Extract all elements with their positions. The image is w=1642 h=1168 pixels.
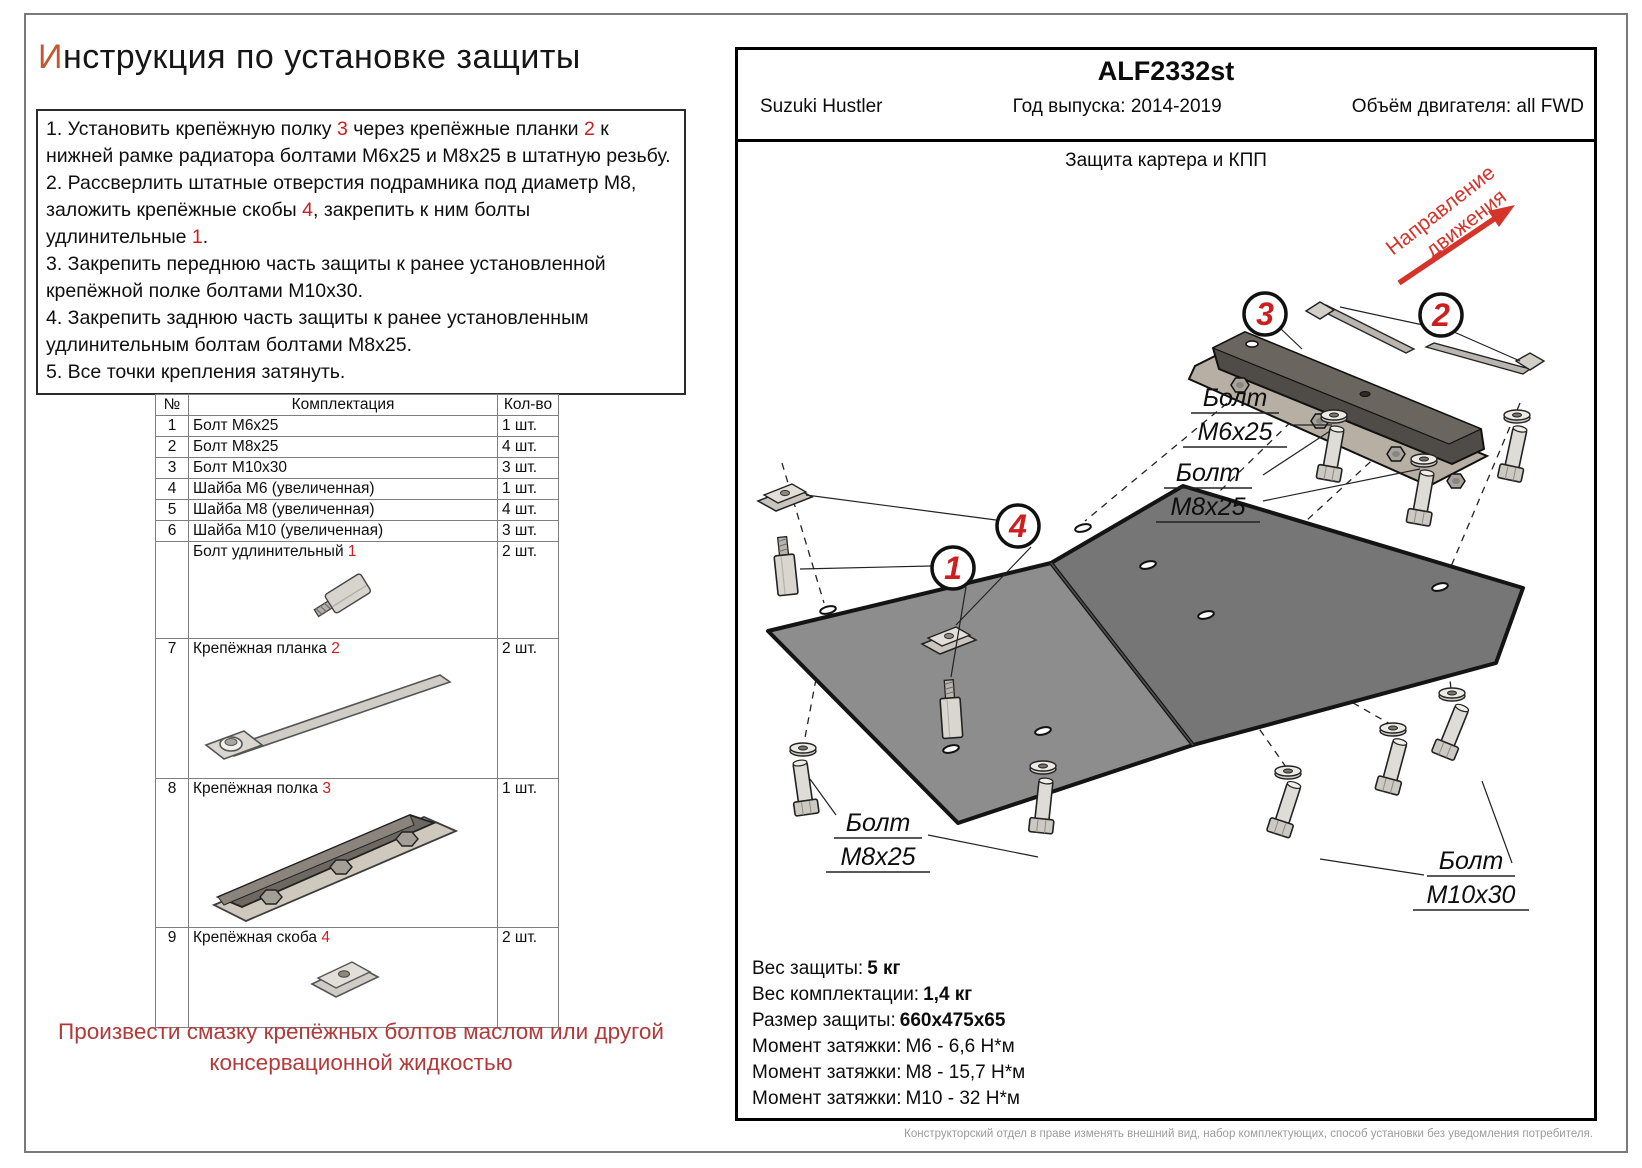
page-title: Инструкция по установке защиты <box>38 38 581 77</box>
part-name: Крепёжная скоба 4 <box>189 928 498 1028</box>
part-number: 8 <box>156 779 189 928</box>
part-qty: 1 шт. <box>498 779 559 928</box>
part-qty: 3 шт. <box>498 458 559 479</box>
part-number: 1 <box>156 416 189 437</box>
extension-bolt <box>772 536 798 596</box>
svg-text:Болт: Болт <box>1439 847 1504 875</box>
part-name: Шайба М8 (увеличенная) <box>189 500 498 521</box>
mounting-clamp <box>758 484 812 511</box>
specs-list: Вес защиты:5 кгВес комплектации:1,4 кгРа… <box>752 956 1025 1112</box>
instruction-list: 1. Установить крепёжную полку 3 через кр… <box>36 109 686 395</box>
part-qty: 2 шт. <box>498 639 559 779</box>
label-bolt-m8x25-lower: Болт М8х25 <box>826 809 930 872</box>
title-lead-letter: И <box>38 38 63 76</box>
mounting-clamp-drawing <box>298 950 388 1012</box>
parts-table-row: 2Болт М8х254 шт. <box>156 437 559 458</box>
spec-line: Момент затяжки:М6 - 6,6 Н*м <box>752 1034 1025 1060</box>
parts-table-row: 8Крепёжная полка 3 1 шт. <box>156 779 559 928</box>
callout-1: 1 <box>932 547 974 589</box>
parts-table-row: 3Болт М10х303 шт. <box>156 458 559 479</box>
part-qty: 4 шт. <box>498 437 559 458</box>
protection-plate <box>768 486 1523 823</box>
exploded-view-drawing: Направление движения <box>740 163 1598 938</box>
part-qty: 2 шт. <box>498 928 559 1028</box>
svg-text:М10х30: М10х30 <box>1427 881 1516 909</box>
instruction-item: 3. Закрепить переднюю часть защиты к ран… <box>46 251 676 305</box>
shelf-nut <box>1387 447 1405 461</box>
label-bolt-m10x30: Болт М10х30 <box>1413 847 1529 910</box>
parts-table-row: 5Шайба М8 (увеличенная)4 шт. <box>156 500 559 521</box>
part-number: 7 <box>156 639 189 779</box>
instruction-item: 2. Рассверлить штатные отверстия подрамн… <box>46 170 676 251</box>
spec-line: Момент затяжки:М8 - 15,7 Н*м <box>752 1060 1025 1086</box>
shelf-nut <box>1447 474 1465 488</box>
part-number: 5 <box>156 500 189 521</box>
parts-table-row: Болт удлинительный 1 2 шт. <box>156 542 559 639</box>
product-code: ALF2332st <box>738 56 1594 87</box>
part-number <box>156 542 189 639</box>
part-name: Шайба М6 (увеличенная) <box>189 479 498 500</box>
header-num: № <box>156 395 189 416</box>
instruction-sheet: Инструкция по установке защиты 1. Устано… <box>0 0 1642 1168</box>
title-rest: нструкция по установке защиты <box>63 38 581 76</box>
drawing-panel: ALF2332st Suzuki Hustler Год выпуска: 20… <box>735 47 1597 1121</box>
parts-table-row: 9Крепёжная скоба 4 2 шт. <box>156 928 559 1028</box>
standoff-bolt-drawing <box>301 564 385 632</box>
instruction-item: 4. Закрепить заднюю часть защиты к ранее… <box>46 305 676 359</box>
part-image-clamp <box>193 950 493 1012</box>
vehicle-years: Год выпуска: 2014-2019 <box>1013 96 1222 118</box>
parts-table-row: 4Шайба М6 (увеличенная)1 шт. <box>156 479 559 500</box>
part-name: Болт М6х25 <box>189 416 498 437</box>
svg-text:М6х25: М6х25 <box>1197 418 1272 446</box>
lubrication-note: Произвести смазку крепёжных болтов масло… <box>36 1016 686 1078</box>
svg-text:4: 4 <box>1008 508 1027 544</box>
part-image-standoff <box>193 564 493 632</box>
part-number: 2 <box>156 437 189 458</box>
header-qty: Кол-во <box>498 395 559 416</box>
vehicle-info-row: Suzuki Hustler Год выпуска: 2014-2019 Об… <box>738 96 1594 118</box>
spec-line: Размер защиты:660х475х65 <box>752 1008 1025 1034</box>
mounting-strip-drawing <box>198 661 488 773</box>
part-qty: 3 шт. <box>498 521 559 542</box>
part-name: Болт удлинительный 1 <box>189 542 498 639</box>
instruction-item: 5. Все точки крепления затянуть. <box>46 359 676 386</box>
callout-4: 4 <box>997 505 1039 547</box>
instruction-item: 1. Установить крепёжную полку 3 через кр… <box>46 116 676 170</box>
parts-table-row: 1Болт М6х251 шт. <box>156 416 559 437</box>
part-name: Болт М8х25 <box>189 437 498 458</box>
callout-3: 3 <box>1244 293 1286 335</box>
spec-line: Вес защиты:5 кг <box>752 956 1025 982</box>
part-name: Крепёжная планка 2 <box>189 639 498 779</box>
svg-text:М8х25: М8х25 <box>1170 493 1245 521</box>
header-name: Комплектация <box>189 395 498 416</box>
svg-text:2: 2 <box>1431 297 1450 333</box>
parts-table-row: 7Крепёжная планка 2 2 шт. <box>156 639 559 779</box>
part-number: 9 <box>156 928 189 1028</box>
part-qty: 1 шт. <box>498 479 559 500</box>
parts-table-body: 1Болт М6х251 шт.2Болт М8х254 шт.3Болт М1… <box>156 416 559 1028</box>
part-name: Крепёжная полка 3 <box>189 779 498 928</box>
part-qty: 4 шт. <box>498 500 559 521</box>
engine-volume: Объём двигателя: all FWD <box>1352 96 1584 118</box>
part-qty: 2 шт. <box>498 542 559 639</box>
spec-line: Вес комплектации:1,4 кг <box>752 982 1025 1008</box>
svg-text:1: 1 <box>944 550 962 586</box>
parts-table-row: 6Шайба М10 (увеличенная)3 шт. <box>156 521 559 542</box>
part-number: 4 <box>156 479 189 500</box>
panel-header: ALF2332st Suzuki Hustler Год выпуска: 20… <box>738 50 1594 142</box>
svg-text:Болт: Болт <box>846 809 911 837</box>
part-name: Шайба М10 (увеличенная) <box>189 521 498 542</box>
svg-text:Болт: Болт <box>1203 384 1268 412</box>
svg-text:М8х25: М8х25 <box>840 843 915 871</box>
part-name: Болт М10х30 <box>189 458 498 479</box>
part-number: 6 <box>156 521 189 542</box>
part-qty: 1 шт. <box>498 416 559 437</box>
spec-line: Момент затяжки:М10 - 32 Н*м <box>752 1086 1025 1112</box>
direction-of-travel: Направление движения <box>1382 163 1516 283</box>
part-image-strip <box>193 661 493 773</box>
callout-2: 2 <box>1420 294 1462 336</box>
strip-end-block <box>1306 302 1334 319</box>
parts-table-header-row: № Комплектация Кол-во <box>156 395 559 416</box>
parts-table: № Комплектация Кол-во 1Болт М6х251 шт.2Б… <box>155 394 559 1028</box>
design-department-note: Конструкторский отдел в праве изменять в… <box>735 1128 1593 1140</box>
svg-text:3: 3 <box>1256 296 1274 332</box>
part-number: 3 <box>156 458 189 479</box>
vehicle-name: Suzuki Hustler <box>760 96 883 118</box>
part-image-shelf <box>193 801 493 927</box>
svg-text:Болт: Болт <box>1176 459 1241 487</box>
mounting-shelf-drawing <box>198 801 488 927</box>
